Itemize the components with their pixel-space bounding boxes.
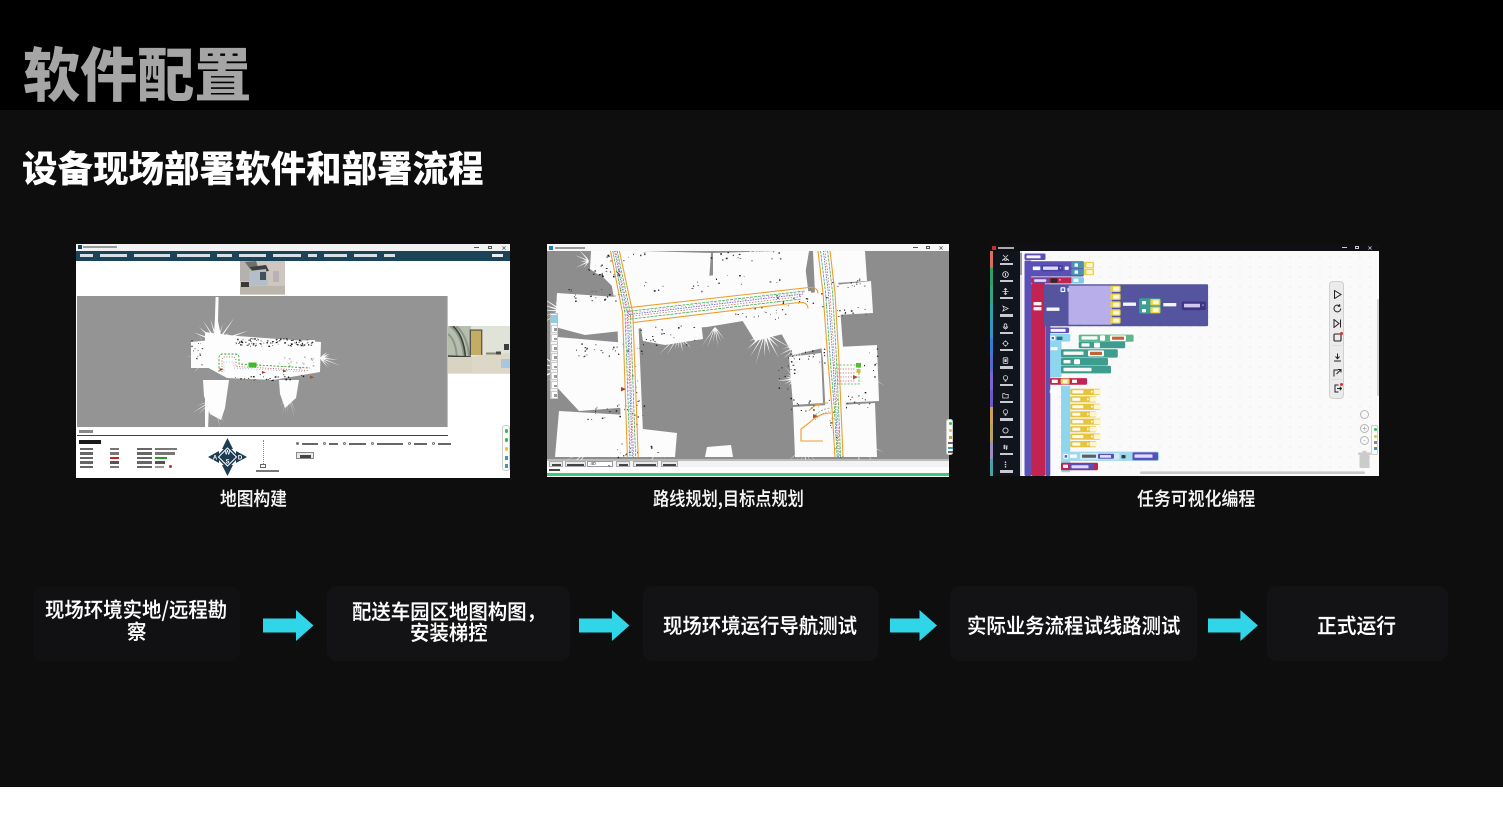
svg-text:D: D [238,455,243,461]
svg-text:A: A [213,455,218,461]
svg-text:S: S [225,459,229,465]
svg-text:W: W [225,450,231,456]
